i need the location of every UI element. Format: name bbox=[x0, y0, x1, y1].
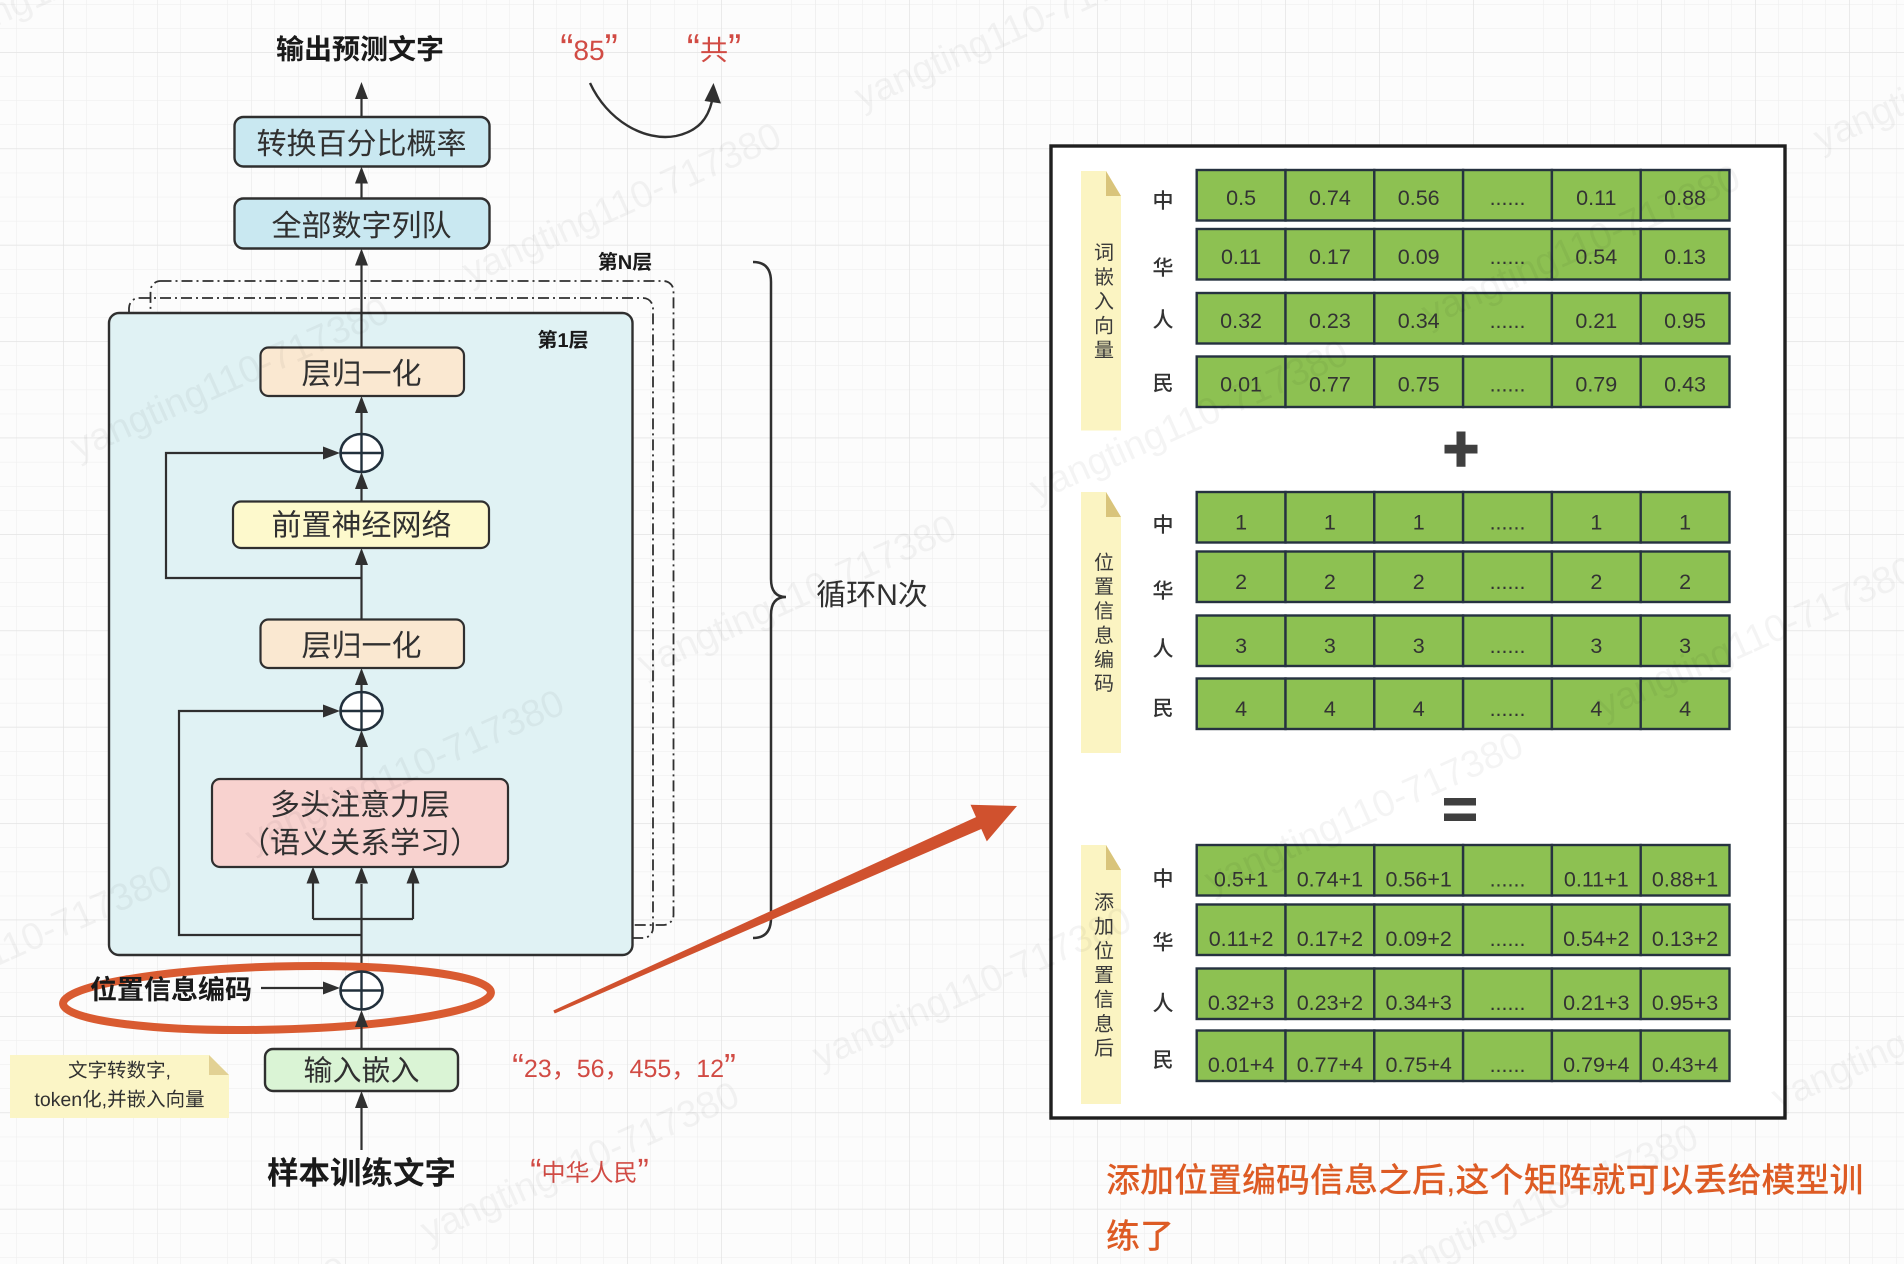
svg-text:0.17: 0.17 bbox=[1309, 245, 1351, 269]
svg-text:3: 3 bbox=[1413, 634, 1425, 658]
svg-text:0.23+2: 0.23+2 bbox=[1297, 991, 1363, 1015]
svg-text:2: 2 bbox=[1413, 570, 1425, 594]
svg-text:2: 2 bbox=[1679, 570, 1691, 594]
svg-text:0.74: 0.74 bbox=[1309, 186, 1351, 210]
svg-text:......: ...... bbox=[1490, 634, 1526, 658]
svg-text:0.17+2: 0.17+2 bbox=[1297, 927, 1363, 951]
svg-text:4: 4 bbox=[1679, 697, 1691, 721]
svg-text:0.77+4: 0.77+4 bbox=[1297, 1053, 1363, 1077]
svg-text:0.13: 0.13 bbox=[1664, 245, 1706, 269]
svg-text:......: ...... bbox=[1490, 991, 1526, 1015]
svg-text:0.11+2: 0.11+2 bbox=[1209, 927, 1274, 951]
svg-text:0.23: 0.23 bbox=[1309, 309, 1351, 333]
svg-text:0.13+2: 0.13+2 bbox=[1652, 927, 1718, 951]
svg-text:2: 2 bbox=[1324, 570, 1336, 594]
svg-text:0.95: 0.95 bbox=[1664, 309, 1706, 333]
svg-text:0.43: 0.43 bbox=[1664, 373, 1706, 397]
svg-text:0.79: 0.79 bbox=[1575, 373, 1617, 397]
svg-text:0.32+3: 0.32+3 bbox=[1208, 991, 1274, 1015]
svg-text:......: ...... bbox=[1490, 511, 1526, 535]
svg-text:0.75: 0.75 bbox=[1398, 373, 1440, 397]
svg-text:2: 2 bbox=[1235, 570, 1247, 594]
svg-text:......: ...... bbox=[1490, 570, 1526, 594]
svg-text:0.5: 0.5 bbox=[1226, 186, 1256, 210]
svg-text:0.09: 0.09 bbox=[1398, 245, 1440, 269]
svg-text:......: ...... bbox=[1490, 309, 1526, 333]
svg-text:0.75+4: 0.75+4 bbox=[1386, 1053, 1452, 1077]
svg-text:3: 3 bbox=[1324, 634, 1336, 658]
svg-text:0.21: 0.21 bbox=[1575, 309, 1617, 333]
svg-text:0.11: 0.11 bbox=[1576, 186, 1616, 210]
svg-text:3: 3 bbox=[1590, 634, 1602, 658]
svg-text:1: 1 bbox=[1413, 511, 1425, 535]
svg-text:4: 4 bbox=[1324, 697, 1336, 721]
svg-text:2: 2 bbox=[1590, 570, 1602, 594]
svg-text:0.21+3: 0.21+3 bbox=[1563, 991, 1629, 1015]
svg-text:3: 3 bbox=[1235, 634, 1247, 658]
svg-text:0.43+4: 0.43+4 bbox=[1652, 1053, 1718, 1077]
svg-text:......: ...... bbox=[1490, 186, 1526, 210]
svg-text:0.95+3: 0.95+3 bbox=[1652, 991, 1718, 1015]
svg-text:0.74+1: 0.74+1 bbox=[1297, 868, 1363, 892]
svg-text:......: ...... bbox=[1490, 1053, 1526, 1077]
svg-text:4: 4 bbox=[1235, 697, 1247, 721]
svg-text:0.56+1: 0.56+1 bbox=[1386, 868, 1452, 892]
svg-text:0.09+2: 0.09+2 bbox=[1386, 927, 1452, 951]
svg-text:......: ...... bbox=[1490, 697, 1526, 721]
svg-text:0.56: 0.56 bbox=[1398, 186, 1440, 210]
svg-text:1: 1 bbox=[1679, 511, 1691, 535]
svg-text:0.01+4: 0.01+4 bbox=[1208, 1053, 1274, 1077]
svg-text:1: 1 bbox=[1590, 511, 1602, 535]
svg-text:......: ...... bbox=[1490, 927, 1526, 951]
svg-text:......: ...... bbox=[1490, 868, 1526, 892]
svg-text:0.34+3: 0.34+3 bbox=[1386, 991, 1452, 1015]
svg-text:......: ...... bbox=[1490, 373, 1526, 397]
svg-text:0.11: 0.11 bbox=[1221, 245, 1261, 269]
svg-text:0.79+4: 0.79+4 bbox=[1563, 1053, 1629, 1077]
svg-text:0.88+1: 0.88+1 bbox=[1652, 868, 1718, 892]
svg-text:0.11+1: 0.11+1 bbox=[1564, 868, 1629, 892]
svg-text:1: 1 bbox=[1324, 511, 1336, 535]
svg-text:0.54+2: 0.54+2 bbox=[1563, 927, 1629, 951]
svg-text:1: 1 bbox=[1235, 511, 1247, 535]
svg-text:0.32: 0.32 bbox=[1220, 309, 1262, 333]
svg-text:4: 4 bbox=[1413, 697, 1425, 721]
